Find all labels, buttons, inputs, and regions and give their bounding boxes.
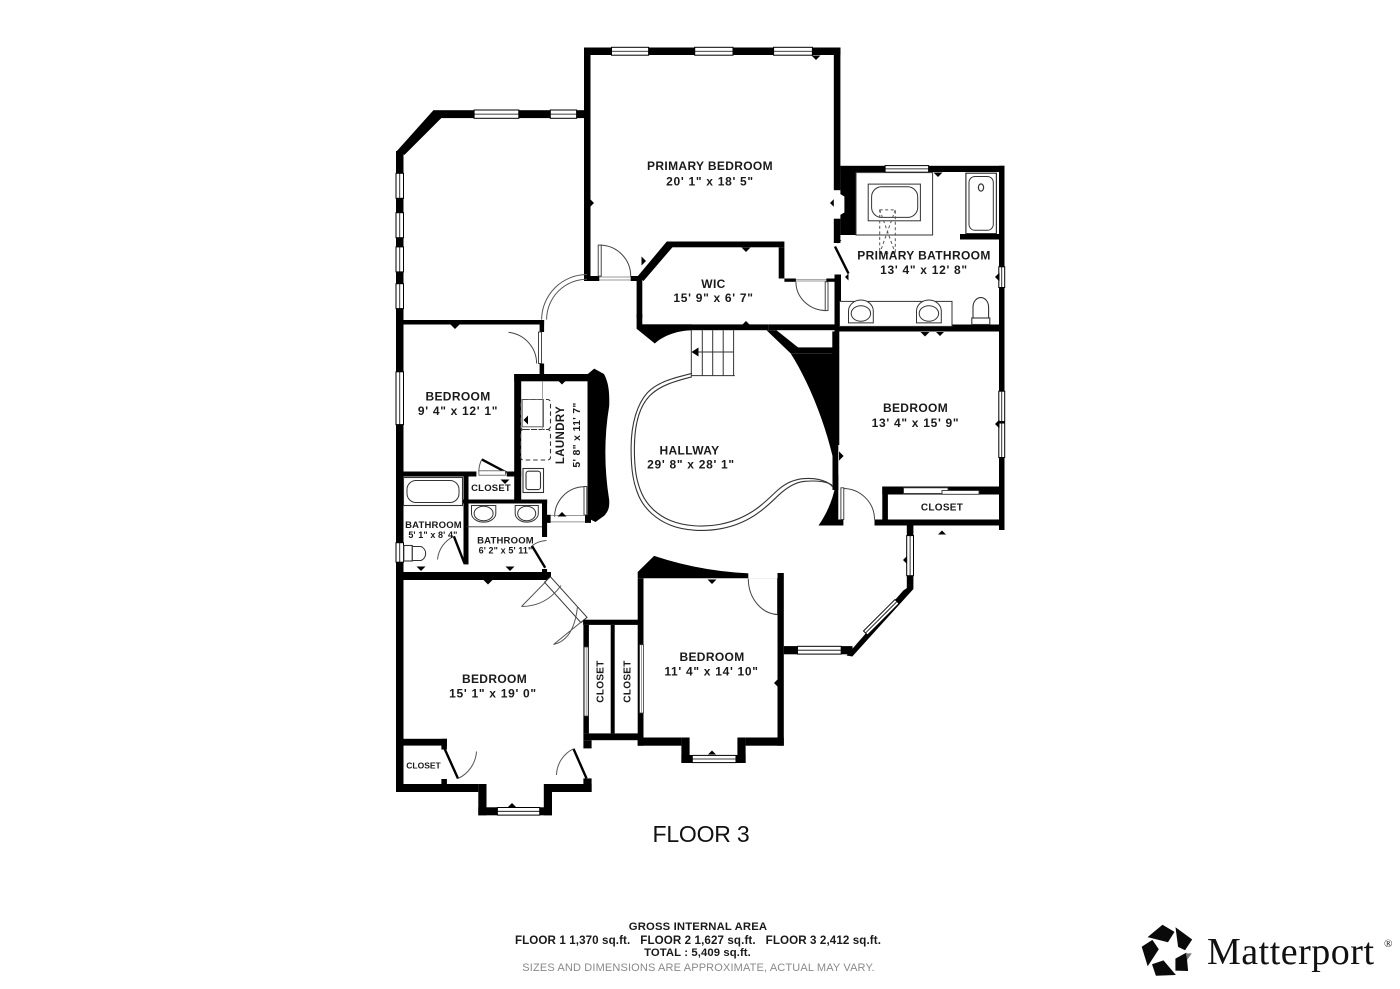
svg-text:BEDROOM: BEDROOM <box>462 672 527 686</box>
svg-text:GROSS INTERNAL AREA: GROSS INTERNAL AREA <box>629 921 767 933</box>
svg-text:CLOSET: CLOSET <box>471 483 511 494</box>
svg-text:11' 4" x 14' 10": 11' 4" x 14' 10" <box>664 665 758 679</box>
svg-text:LAUNDRY: LAUNDRY <box>555 406 567 464</box>
svg-text:®: ® <box>1384 938 1392 950</box>
svg-text:29' 8" x 28' 1": 29' 8" x 28' 1" <box>647 458 735 472</box>
svg-text:5' 8" x 11' 7": 5' 8" x 11' 7" <box>571 402 583 467</box>
svg-text:BEDROOM: BEDROOM <box>679 650 744 664</box>
svg-text:SIZES AND DIMENSIONS ARE APPRO: SIZES AND DIMENSIONS ARE APPROXIMATE, AC… <box>522 962 874 974</box>
svg-text:BEDROOM: BEDROOM <box>425 390 490 404</box>
svg-text:BEDROOM: BEDROOM <box>883 401 948 415</box>
svg-text:6' 2" x 5' 11": 6' 2" x 5' 11" <box>479 546 533 556</box>
svg-text:Matterport: Matterport <box>1207 931 1375 973</box>
svg-text:CLOSET: CLOSET <box>406 761 441 771</box>
svg-text:CLOSET: CLOSET <box>623 660 634 702</box>
svg-text:15' 9" x 6' 7": 15' 9" x 6' 7" <box>673 291 753 305</box>
svg-text:CLOSET: CLOSET <box>921 503 963 514</box>
svg-text:TOTAL : 5,409 sq.ft.: TOTAL : 5,409 sq.ft. <box>644 947 751 959</box>
svg-text:20' 1" x 18' 5": 20' 1" x 18' 5" <box>666 175 754 189</box>
svg-text:13' 4" x 12' 8": 13' 4" x 12' 8" <box>880 263 968 277</box>
svg-text:PRIMARY BATHROOM: PRIMARY BATHROOM <box>857 249 990 263</box>
svg-text:CLOSET: CLOSET <box>596 660 607 702</box>
svg-text:WIC: WIC <box>701 277 725 291</box>
svg-text:15' 1" x 19' 0": 15' 1" x 19' 0" <box>449 687 537 701</box>
svg-text:FLOOR 3: FLOOR 3 <box>652 821 749 847</box>
svg-text:PRIMARY BEDROOM: PRIMARY BEDROOM <box>647 159 773 173</box>
svg-text:13' 4" x 15' 9": 13' 4" x 15' 9" <box>872 416 960 430</box>
svg-text:HALLWAY: HALLWAY <box>659 444 719 458</box>
svg-text:5' 1" x 8' 4": 5' 1" x 8' 4" <box>408 530 457 540</box>
svg-text:9' 4" x 12' 1": 9' 4" x 12' 1" <box>418 404 498 418</box>
svg-text:FLOOR 1 1,370 sq.ft. FLOOR 2: FLOOR 1 1,370 sq.ft. FLOOR 2 1,627 sq.ft… <box>515 934 881 947</box>
